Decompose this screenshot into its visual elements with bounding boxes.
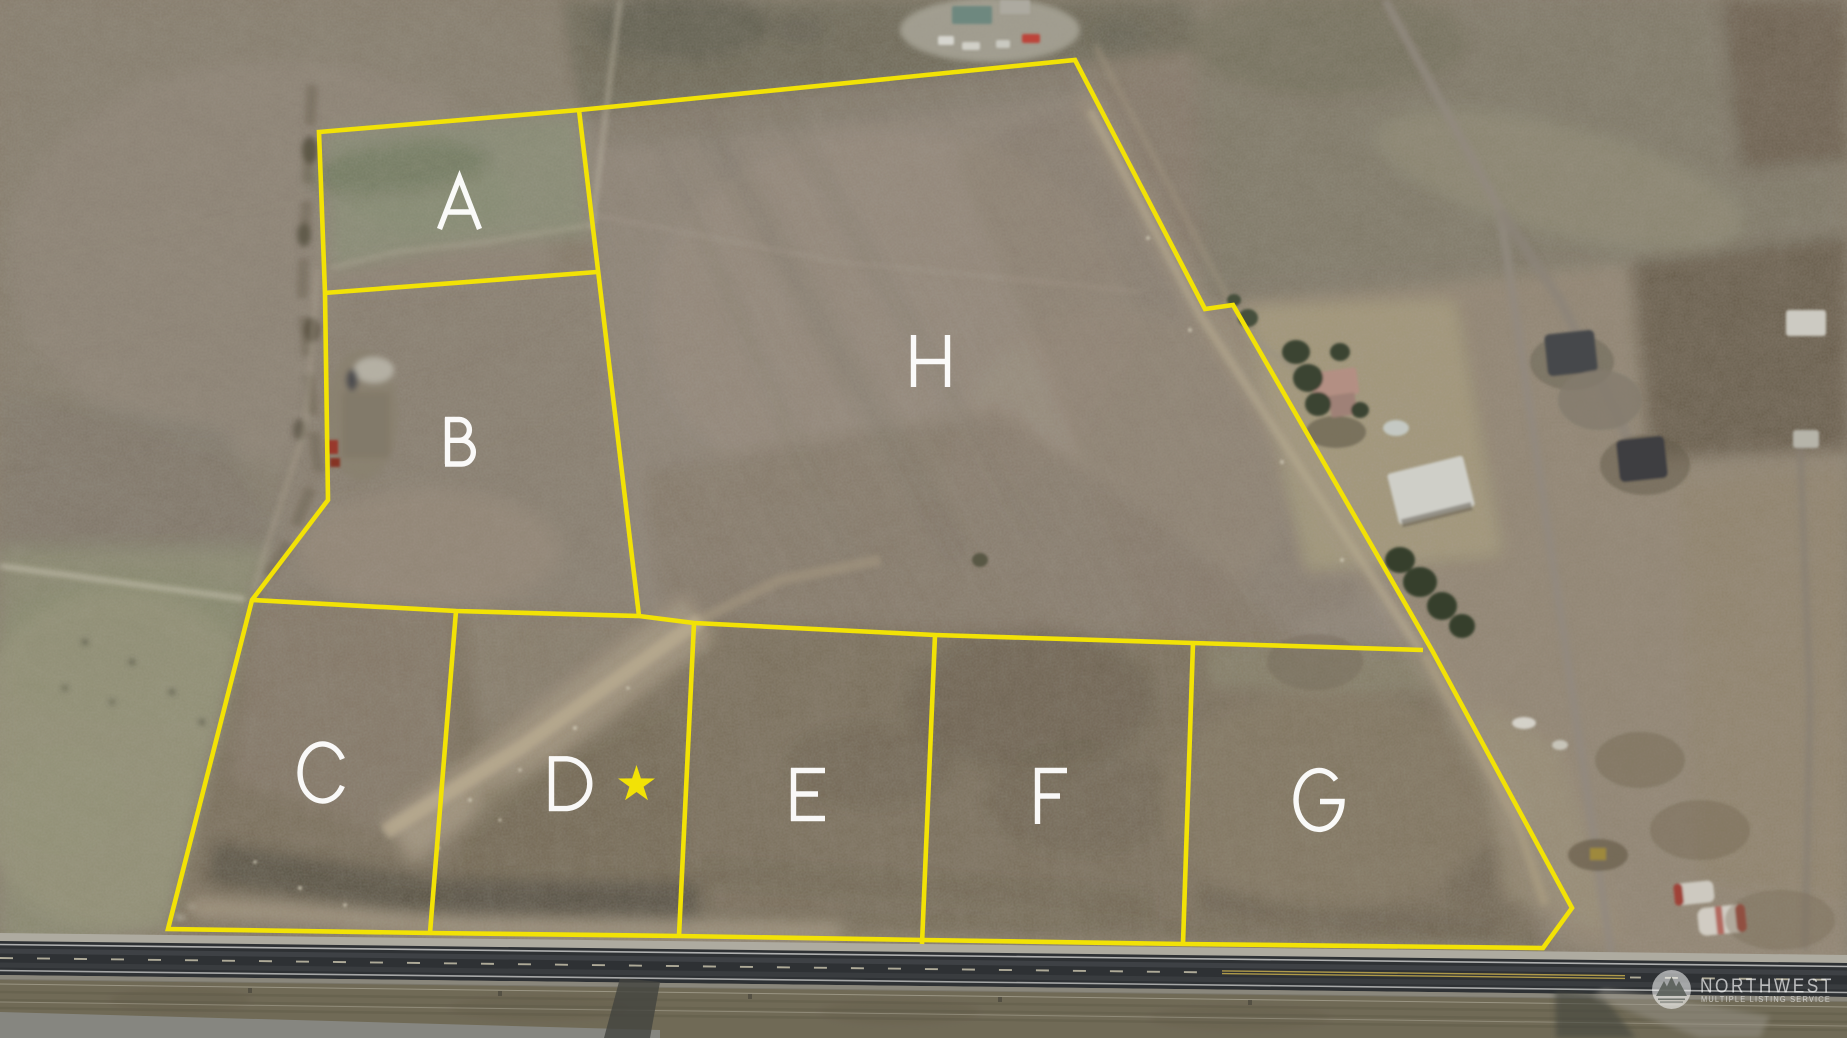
- svg-text:NORTHWEST: NORTHWEST: [1700, 976, 1834, 998]
- svg-text:MULTIPLE LISTING SERVICE: MULTIPLE LISTING SERVICE: [1701, 995, 1831, 1004]
